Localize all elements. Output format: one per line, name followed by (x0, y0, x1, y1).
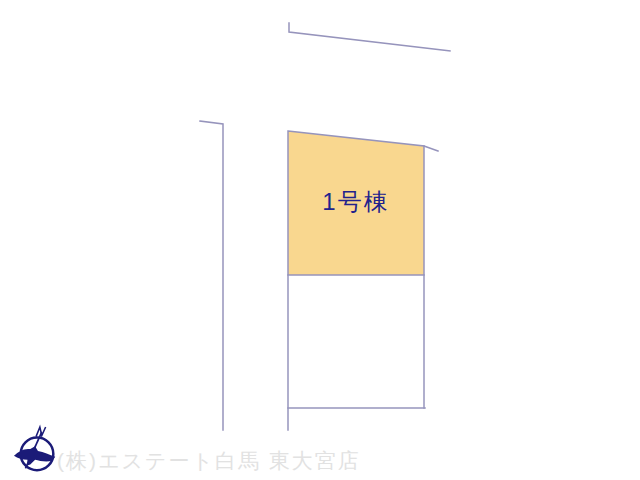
building-plot-label: 1号棟 (288, 186, 424, 218)
site-plan-canvas: 1号棟 (株)エステート白馬 東大宮店 (0, 0, 640, 480)
boundary-road-top (289, 23, 450, 51)
site-plan-drawing (0, 0, 640, 480)
boundary-road-left (200, 121, 223, 430)
plot-corner-extension-line (424, 146, 438, 151)
company-watermark: (株)エステート白馬 東大宮店 (57, 447, 361, 475)
compass-north-icon (13, 424, 61, 478)
